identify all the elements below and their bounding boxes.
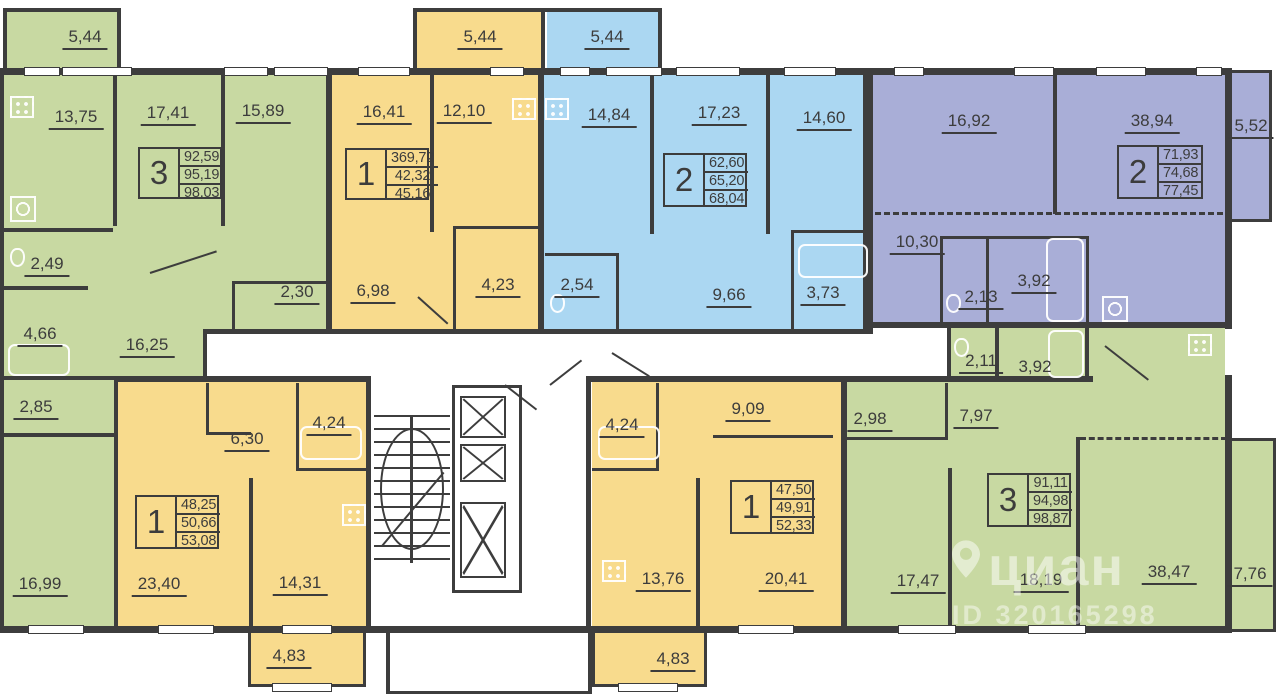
wall <box>1085 327 1089 381</box>
room-area-label: 16,99 <box>13 575 68 597</box>
wall <box>413 8 545 12</box>
apartment-area-value: 53,08 <box>177 533 220 549</box>
window <box>784 67 836 76</box>
wall <box>363 630 366 687</box>
wall <box>453 226 542 229</box>
window <box>738 625 794 634</box>
wall <box>592 630 595 687</box>
wall <box>863 70 873 332</box>
elevator-shaft <box>460 444 506 482</box>
room-area-label: 9,09 <box>725 400 770 422</box>
room-area-label: 3,92 <box>1011 272 1056 294</box>
apartment-area-value: 77,45 <box>1159 183 1202 199</box>
wall <box>1232 70 1272 73</box>
apartment-area-value: 94,98 <box>1029 493 1072 511</box>
apartment-area-value: 98,03 <box>180 185 223 201</box>
room-area-label: 38,47 <box>1142 563 1197 585</box>
room-area-label: 6,98 <box>350 282 395 304</box>
apartment-area-value: 369,72 <box>387 150 438 168</box>
room-area-label: 4,83 <box>650 650 695 672</box>
room-area-label: 2,98 <box>847 410 892 432</box>
apartment-area-value: 95,19 <box>180 167 223 185</box>
wall <box>588 633 592 693</box>
window <box>274 67 328 76</box>
room-area-label: 13,76 <box>636 570 691 592</box>
wall <box>616 253 619 332</box>
room-area-label: 4,24 <box>306 414 351 436</box>
window <box>1096 67 1146 76</box>
wall <box>696 478 700 630</box>
window <box>898 625 956 634</box>
wall <box>1086 236 1089 327</box>
stove-icon <box>342 504 366 526</box>
balcony-region <box>1232 72 1272 220</box>
washing-machine-icon <box>1102 296 1128 322</box>
room-area-label: 10,30 <box>890 233 945 255</box>
washing-machine-icon <box>10 196 36 222</box>
room-area-label: 20,41 <box>759 570 814 592</box>
window <box>618 683 678 692</box>
door-swing <box>549 360 582 386</box>
wall <box>0 68 4 633</box>
room-area-label: 17,23 <box>692 104 747 126</box>
apartment-area-value: 48,25 <box>177 497 220 515</box>
elevator-x-icon <box>462 446 504 480</box>
elevator-shaft <box>460 502 506 578</box>
room-area-label: 13,75 <box>49 108 104 130</box>
wall <box>545 8 661 12</box>
wall <box>945 383 948 440</box>
elevator-shaft <box>460 396 506 438</box>
wall <box>117 8 121 70</box>
wall <box>592 468 659 471</box>
wall <box>586 376 847 382</box>
wall <box>1228 629 1276 632</box>
window <box>490 67 524 76</box>
wall <box>0 228 113 232</box>
bathtub-icon <box>8 344 70 376</box>
apartment-area-value: 42,32 <box>387 168 438 186</box>
room-area-label: 16,92 <box>942 112 997 134</box>
window <box>28 625 84 634</box>
window <box>158 625 214 634</box>
room-area-label: 14,84 <box>582 106 637 128</box>
room-area-label: 17,47 <box>891 572 946 594</box>
wall <box>248 630 251 687</box>
bathtub-icon <box>798 244 868 278</box>
window <box>24 67 60 76</box>
room-area-label: 7,76 <box>1227 565 1272 587</box>
wall <box>650 74 654 234</box>
apartment-area-value: 52,33 <box>772 518 815 534</box>
wall <box>413 8 417 70</box>
door-swing <box>611 352 649 377</box>
room-area-label: 15,89 <box>236 102 291 124</box>
room-area-label: 16,41 <box>357 103 412 125</box>
apartment-rooms-count: 1 <box>732 482 772 532</box>
window <box>62 67 132 76</box>
room-area-label: 4,66 <box>17 325 62 347</box>
room-area-label: 6,30 <box>224 430 269 452</box>
apartment-area-value: 45,16 <box>387 186 438 202</box>
wall <box>1232 219 1272 222</box>
apartment-rooms-count: 1 <box>137 497 177 547</box>
elevator-x-icon <box>462 398 504 436</box>
wall <box>0 433 114 437</box>
wall <box>326 70 332 332</box>
room-area-label: 12,10 <box>437 102 492 124</box>
wall <box>586 376 591 633</box>
apartment-area-value: 68,04 <box>705 191 748 207</box>
window <box>606 67 662 76</box>
apartment-info-box: 3 91,11 94,98 98,87 <box>987 473 1071 527</box>
stove-icon <box>602 560 626 582</box>
apartment-area-value: 91,11 <box>1029 475 1072 493</box>
room-area-label: 17,41 <box>141 104 196 126</box>
apartment-area-value: 71,93 <box>1159 147 1202 165</box>
apartment-info-box: 3 92,59 95,19 98,03 <box>138 147 222 199</box>
wall <box>658 8 662 70</box>
watermark-id: ID 320165298 <box>952 600 1158 631</box>
wall <box>113 74 117 226</box>
apartment-info-box: 2 71,93 74,68 77,45 <box>1117 145 1203 199</box>
wall <box>713 435 833 438</box>
apartment-area-value: 49,91 <box>772 500 815 518</box>
wall <box>0 286 88 290</box>
apartment-rooms-count: 3 <box>140 149 180 197</box>
wall <box>114 376 118 633</box>
apartment-info-box: 1 47,50 49,91 52,33 <box>730 480 814 534</box>
room-area-label: 3,92 <box>1012 358 1057 380</box>
wall <box>3 8 7 70</box>
apartment-rooms-count: 2 <box>1119 147 1159 197</box>
wall <box>203 329 207 381</box>
wall <box>541 8 545 70</box>
wall <box>3 8 121 12</box>
apartment-area-value: 92,59 <box>180 149 223 167</box>
apartment-info-box: 2 62,60 65,20 68,04 <box>663 153 747 207</box>
room-area-label: 23,40 <box>132 575 187 597</box>
apartment-rooms-count: 1 <box>347 150 387 198</box>
window <box>1014 67 1054 76</box>
wall <box>791 230 794 332</box>
room-area-label: 2,13 <box>958 288 1003 310</box>
wall <box>206 383 209 435</box>
room-area-label: 16,25 <box>120 336 175 358</box>
floor-plan: 5,44 13,75 17,41 15,89 2,49 4,66 2,85 16… <box>0 0 1280 699</box>
window <box>676 67 740 76</box>
wall <box>545 253 619 256</box>
window <box>1196 67 1222 76</box>
wall <box>296 468 370 471</box>
room-area-label: 2,85 <box>13 398 58 420</box>
wall-dashed <box>875 212 1223 215</box>
apartment-info-box: 1 48,25 50,66 53,08 <box>135 495 219 549</box>
room-area-label: 3,73 <box>800 284 845 306</box>
room-area-label: 5,44 <box>457 28 502 50</box>
stair-path-oval <box>380 428 444 550</box>
watermark-brand: циан <box>988 536 1125 598</box>
elevator-x-icon <box>462 504 504 576</box>
wall <box>947 327 951 381</box>
apartment-rooms-count: 3 <box>989 475 1029 525</box>
wall <box>453 226 456 332</box>
room-area-label: 14,31 <box>273 574 328 596</box>
window <box>560 67 590 76</box>
room-area-label: 2,30 <box>274 283 319 305</box>
stove-icon <box>545 98 569 120</box>
map-pin-icon <box>952 540 980 578</box>
apartment-area-value: 65,20 <box>705 173 748 191</box>
balcony-region <box>1230 440 1274 630</box>
wall <box>766 74 770 234</box>
room-area-label: 4,24 <box>599 416 644 438</box>
wall <box>0 376 114 380</box>
wall <box>704 630 707 687</box>
wall <box>205 329 873 334</box>
wall <box>296 383 299 471</box>
room-area-label: 2,49 <box>24 255 69 277</box>
apartment-area-value: 50,66 <box>177 515 220 533</box>
wall <box>1273 438 1276 632</box>
room-area-label: 38,94 <box>1125 112 1180 134</box>
window <box>272 683 332 692</box>
wall <box>1225 68 1232 329</box>
apartment-area-value: 47,50 <box>772 482 815 500</box>
wall <box>845 437 948 440</box>
room-area-label: 9,66 <box>706 286 751 308</box>
wall <box>1269 70 1272 222</box>
wall <box>791 230 869 233</box>
stove-icon <box>512 98 536 120</box>
apartment-info-box: 1 369,72 42,32 45,16 <box>345 148 429 200</box>
apartment-area-value: 62,60 <box>705 155 748 173</box>
window <box>358 67 410 76</box>
apartment-area-value: 98,87 <box>1029 511 1072 527</box>
wall <box>386 691 592 694</box>
wall <box>986 236 989 327</box>
wall <box>1053 74 1057 214</box>
wall <box>873 322 1225 328</box>
stove-icon <box>10 96 34 118</box>
window <box>282 625 332 634</box>
stove-icon <box>1188 334 1212 356</box>
wall <box>114 376 371 382</box>
wall <box>1225 375 1232 633</box>
wall-dashed <box>1080 437 1227 440</box>
room-area-label: 5,44 <box>62 28 107 50</box>
room-area-label: 2,54 <box>554 276 599 298</box>
room-area-label: 14,60 <box>797 109 852 131</box>
wall <box>386 633 390 693</box>
wall <box>841 376 847 633</box>
wall <box>366 376 371 633</box>
room-area-label: 5,52 <box>1228 117 1273 139</box>
room-area-label: 4,83 <box>266 647 311 669</box>
wall <box>538 70 544 332</box>
toilet-icon <box>10 248 25 267</box>
room-area-label: 2,11 <box>959 352 1003 374</box>
window <box>894 67 924 76</box>
wall <box>1228 438 1276 441</box>
room-area-label: 4,23 <box>475 276 520 298</box>
apartment-area-value: 74,68 <box>1159 165 1202 183</box>
room-area-label: 5,44 <box>584 28 629 50</box>
room-area-label: 7,97 <box>953 407 998 429</box>
wall <box>232 281 235 332</box>
wall <box>249 478 253 630</box>
apartment-rooms-count: 2 <box>665 155 705 205</box>
window <box>224 67 268 76</box>
